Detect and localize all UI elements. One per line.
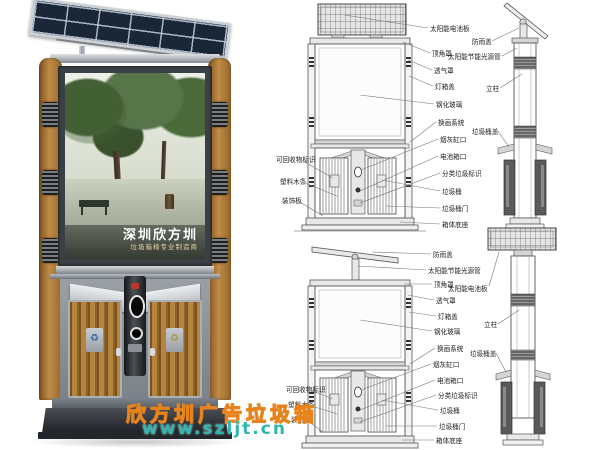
- label-pillar: 立柱: [486, 84, 500, 93]
- label-recyclable-sign: 可回收物标识: [286, 385, 326, 394]
- page: 深圳欣方圳 垃圾箱椅专业制造商 ♻ ♻: [0, 0, 600, 450]
- label-tempered-glass: 钢化玻璃: [434, 327, 461, 336]
- label-bin-door: 垃圾桶门: [442, 204, 468, 213]
- label-vent-cover: 透气罩: [436, 296, 456, 305]
- label-ashtray-port: 烟灰缸口: [440, 135, 466, 144]
- front-view-top-drawing: 太阳能电池板 顶角罩 透气罩 灯箱盖 钢化玻璃 换画系统 烟灰缸口 电池箱口 分…: [276, 4, 482, 231]
- side-view-top-drawing: 防雨盖 太阳能节能光源管 立柱 垃圾桶盖: [448, 3, 552, 229]
- label-solar-lamp-tube: 太阳能节能光源管: [428, 266, 481, 275]
- label-ashtray-port: 烟灰缸口: [433, 360, 459, 369]
- label-trash-bin: 垃圾桶: [442, 187, 462, 196]
- label-decor-panel: 装饰板: [282, 196, 302, 205]
- label-tempered-glass: 钢化玻璃: [436, 100, 463, 109]
- technical-diagrams: 太阳能电池板 顶角罩 透气罩 灯箱盖 钢化玻璃 换画系统 烟灰缸口 电池箱口 分…: [0, 0, 600, 450]
- side-view-bottom-drawing: 太阳能电池板 立柱 垃圾桶盖: [448, 228, 556, 445]
- label-box-base: 箱体底座: [436, 436, 463, 445]
- label-bin-cover: 垃圾桶盖: [470, 349, 497, 358]
- label-recyclable-sign: 可回收物标识: [276, 155, 316, 164]
- watermark-url: www.szljt.cn: [142, 419, 287, 439]
- label-solar-panel: 太阳能电池板: [430, 24, 470, 33]
- label-bin-door: 垃圾桶门: [439, 422, 465, 431]
- label-rain-cover: 防雨盖: [433, 250, 453, 259]
- label-box-cover: 灯箱盖: [438, 312, 458, 321]
- label-pillar: 立柱: [484, 320, 498, 329]
- label-sorting-sign: 分类垃圾标识: [442, 169, 482, 178]
- label-vent-cover: 透气罩: [434, 66, 454, 75]
- label-plastic-wood: 塑料木条: [280, 177, 307, 186]
- label-bin-cover: 垃圾桶盖: [472, 127, 499, 136]
- label-solar-panel: 太阳能电池板: [448, 284, 488, 293]
- label-change-system: 换画系统: [438, 118, 465, 127]
- label-battery-port: 电池箱口: [440, 152, 466, 161]
- label-box-cover: 灯箱盖: [435, 82, 455, 91]
- label-battery-port: 电池箱口: [437, 376, 463, 385]
- label-change-system: 换画系统: [437, 344, 464, 353]
- label-box-base: 箱体底座: [442, 220, 469, 229]
- label-solar-lamp-tube: 太阳能节能光源管: [448, 52, 501, 61]
- label-sorting-sign: 分类垃圾标识: [438, 391, 478, 400]
- label-rain-cover: 防雨盖: [472, 37, 492, 46]
- label-trash-bin: 垃圾桶: [440, 406, 460, 415]
